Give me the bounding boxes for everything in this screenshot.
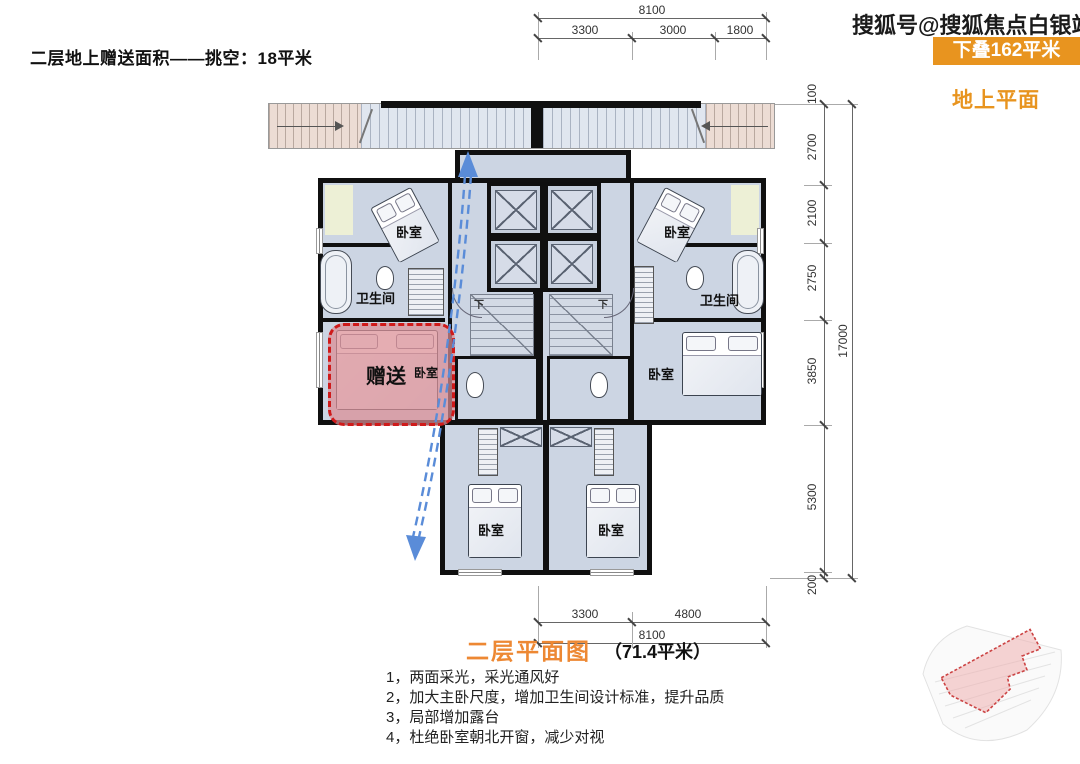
note-item: 3，局部增加露台 <box>386 708 724 728</box>
notes-list: 1，两面采光，采光通风好 2，加大主卧尺度，增加卫生间设计标准，提升品质 3，局… <box>386 668 724 748</box>
site-plan-inset <box>915 612 1075 764</box>
dim-line <box>538 38 766 39</box>
dim-label: 1800 <box>727 23 754 37</box>
dim-label: 3000 <box>660 23 687 37</box>
plan-area-note: （71.4平米） <box>604 638 711 664</box>
dim-label: 3300 <box>572 23 599 37</box>
dim-line <box>538 622 766 623</box>
dim-label: 4800 <box>675 607 702 621</box>
note-item: 2，加大主卧尺度，增加卫生间设计标准，提升品质 <box>386 688 724 708</box>
dim-ext <box>766 586 767 648</box>
note-item: 1，两面采光，采光通风好 <box>386 668 724 688</box>
note-item: 4，杜绝卧室朝北开窗，减少对视 <box>386 728 724 748</box>
dim-label: 3300 <box>572 607 599 621</box>
area-badge: 下叠162平米 <box>933 37 1080 65</box>
page-title: 二层地上赠送面积——挑空：18平米 <box>30 44 312 69</box>
floorplan-page: 二层地上赠送面积——挑空：18平米 搜狐号@搜狐焦点白银站 下叠162平米 地上… <box>0 0 1080 764</box>
dim-label: 8100 <box>639 3 666 17</box>
dim-line <box>538 18 766 19</box>
plan-title: 二层平面图 <box>466 632 591 666</box>
watermark: 搜狐号@搜狐焦点白银站 <box>852 8 1080 40</box>
circulation-arrow <box>265 95 865 595</box>
floor-level-tag: 地上平面 <box>952 84 1040 114</box>
